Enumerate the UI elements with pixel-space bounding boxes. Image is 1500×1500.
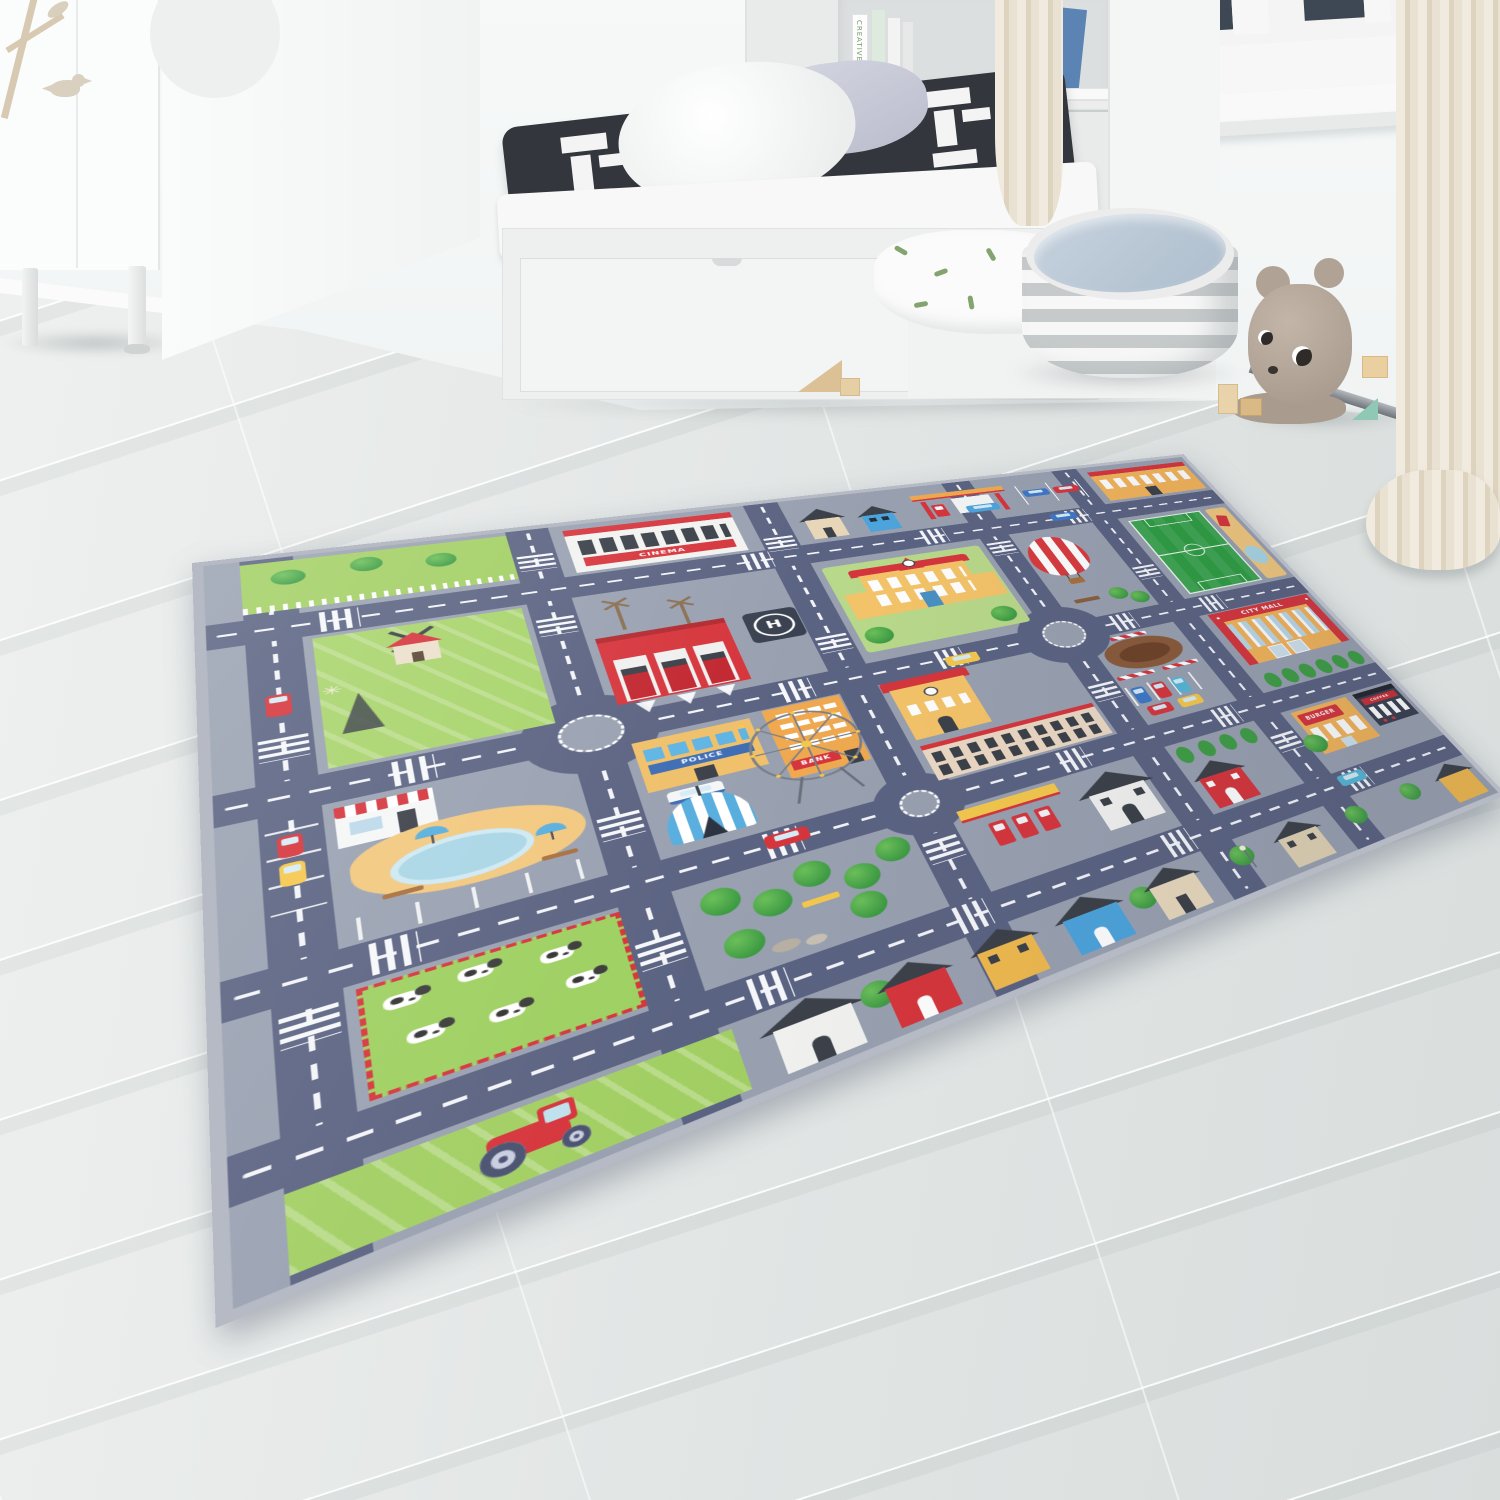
house: [861, 512, 902, 532]
power-pylon: [679, 602, 692, 625]
rock: [770, 936, 802, 956]
panel-foot: [124, 344, 150, 354]
car: [1176, 693, 1205, 708]
drawer-notch: [712, 258, 742, 266]
wooden-block: [840, 378, 860, 396]
tree: [840, 859, 886, 893]
cushion-pattern: [560, 133, 608, 154]
tree: [720, 924, 770, 964]
cushion-pattern: [570, 154, 594, 192]
ferris-leg: [798, 777, 804, 804]
curtain-right-puddle: [1366, 470, 1500, 570]
power-pylon: [614, 604, 627, 630]
rock: [804, 931, 829, 947]
scene: CINEMA ✳: [0, 0, 1500, 1500]
balloon-basket: [1068, 577, 1086, 585]
fuel-pump: [1011, 812, 1040, 839]
fuel-pump: [1033, 805, 1062, 831]
bird-handle: [42, 72, 94, 108]
bench: [1074, 596, 1101, 604]
plush-nose: [1268, 366, 1278, 374]
tree: [789, 857, 835, 892]
plush-eye: [1292, 346, 1312, 366]
tree: [871, 833, 915, 865]
cushion-pattern: [932, 149, 977, 168]
book-spine-text: CREATIVE: [855, 20, 863, 62]
fuel-pump: [988, 819, 1017, 846]
barrier: [1116, 669, 1155, 681]
panel-leg: [128, 266, 146, 350]
plush-eye: [1258, 330, 1273, 345]
bush: [1236, 726, 1261, 745]
car: [1021, 488, 1051, 497]
curtain-right: [1396, 0, 1500, 540]
wardrobe-seam: [76, 0, 78, 268]
wardrobe-leg: [22, 268, 38, 346]
leaf-mark: [894, 245, 909, 256]
plush-ear: [1314, 258, 1344, 288]
bush: [1194, 739, 1220, 758]
bird-beak: [84, 78, 92, 84]
tree: [749, 884, 797, 921]
leaf-mark: [934, 268, 949, 277]
bird-head: [72, 74, 85, 87]
bench: [801, 891, 840, 908]
curtain-left: [995, 0, 1063, 226]
bush: [1216, 732, 1241, 751]
windmill-door: [412, 651, 425, 662]
tree: [1105, 586, 1131, 600]
leaf-mark: [967, 295, 974, 310]
wooden-block: [1218, 384, 1238, 414]
cushion-pattern: [923, 87, 971, 108]
tree: [696, 883, 745, 920]
cushion-pattern: [962, 107, 991, 122]
car: [1146, 701, 1176, 716]
leaf-mark: [914, 301, 929, 308]
cushion-pattern: [934, 109, 958, 147]
tree: [846, 886, 893, 922]
play-rug: CINEMA ✳: [192, 454, 1500, 1328]
ferris-leg: [839, 767, 865, 787]
leaf-mark: [985, 247, 996, 262]
tree: [1395, 781, 1426, 803]
storage-drawer: [520, 258, 932, 392]
wooden-block: [1362, 356, 1388, 378]
wooden-block: [1240, 398, 1262, 416]
bush: [1172, 745, 1198, 765]
